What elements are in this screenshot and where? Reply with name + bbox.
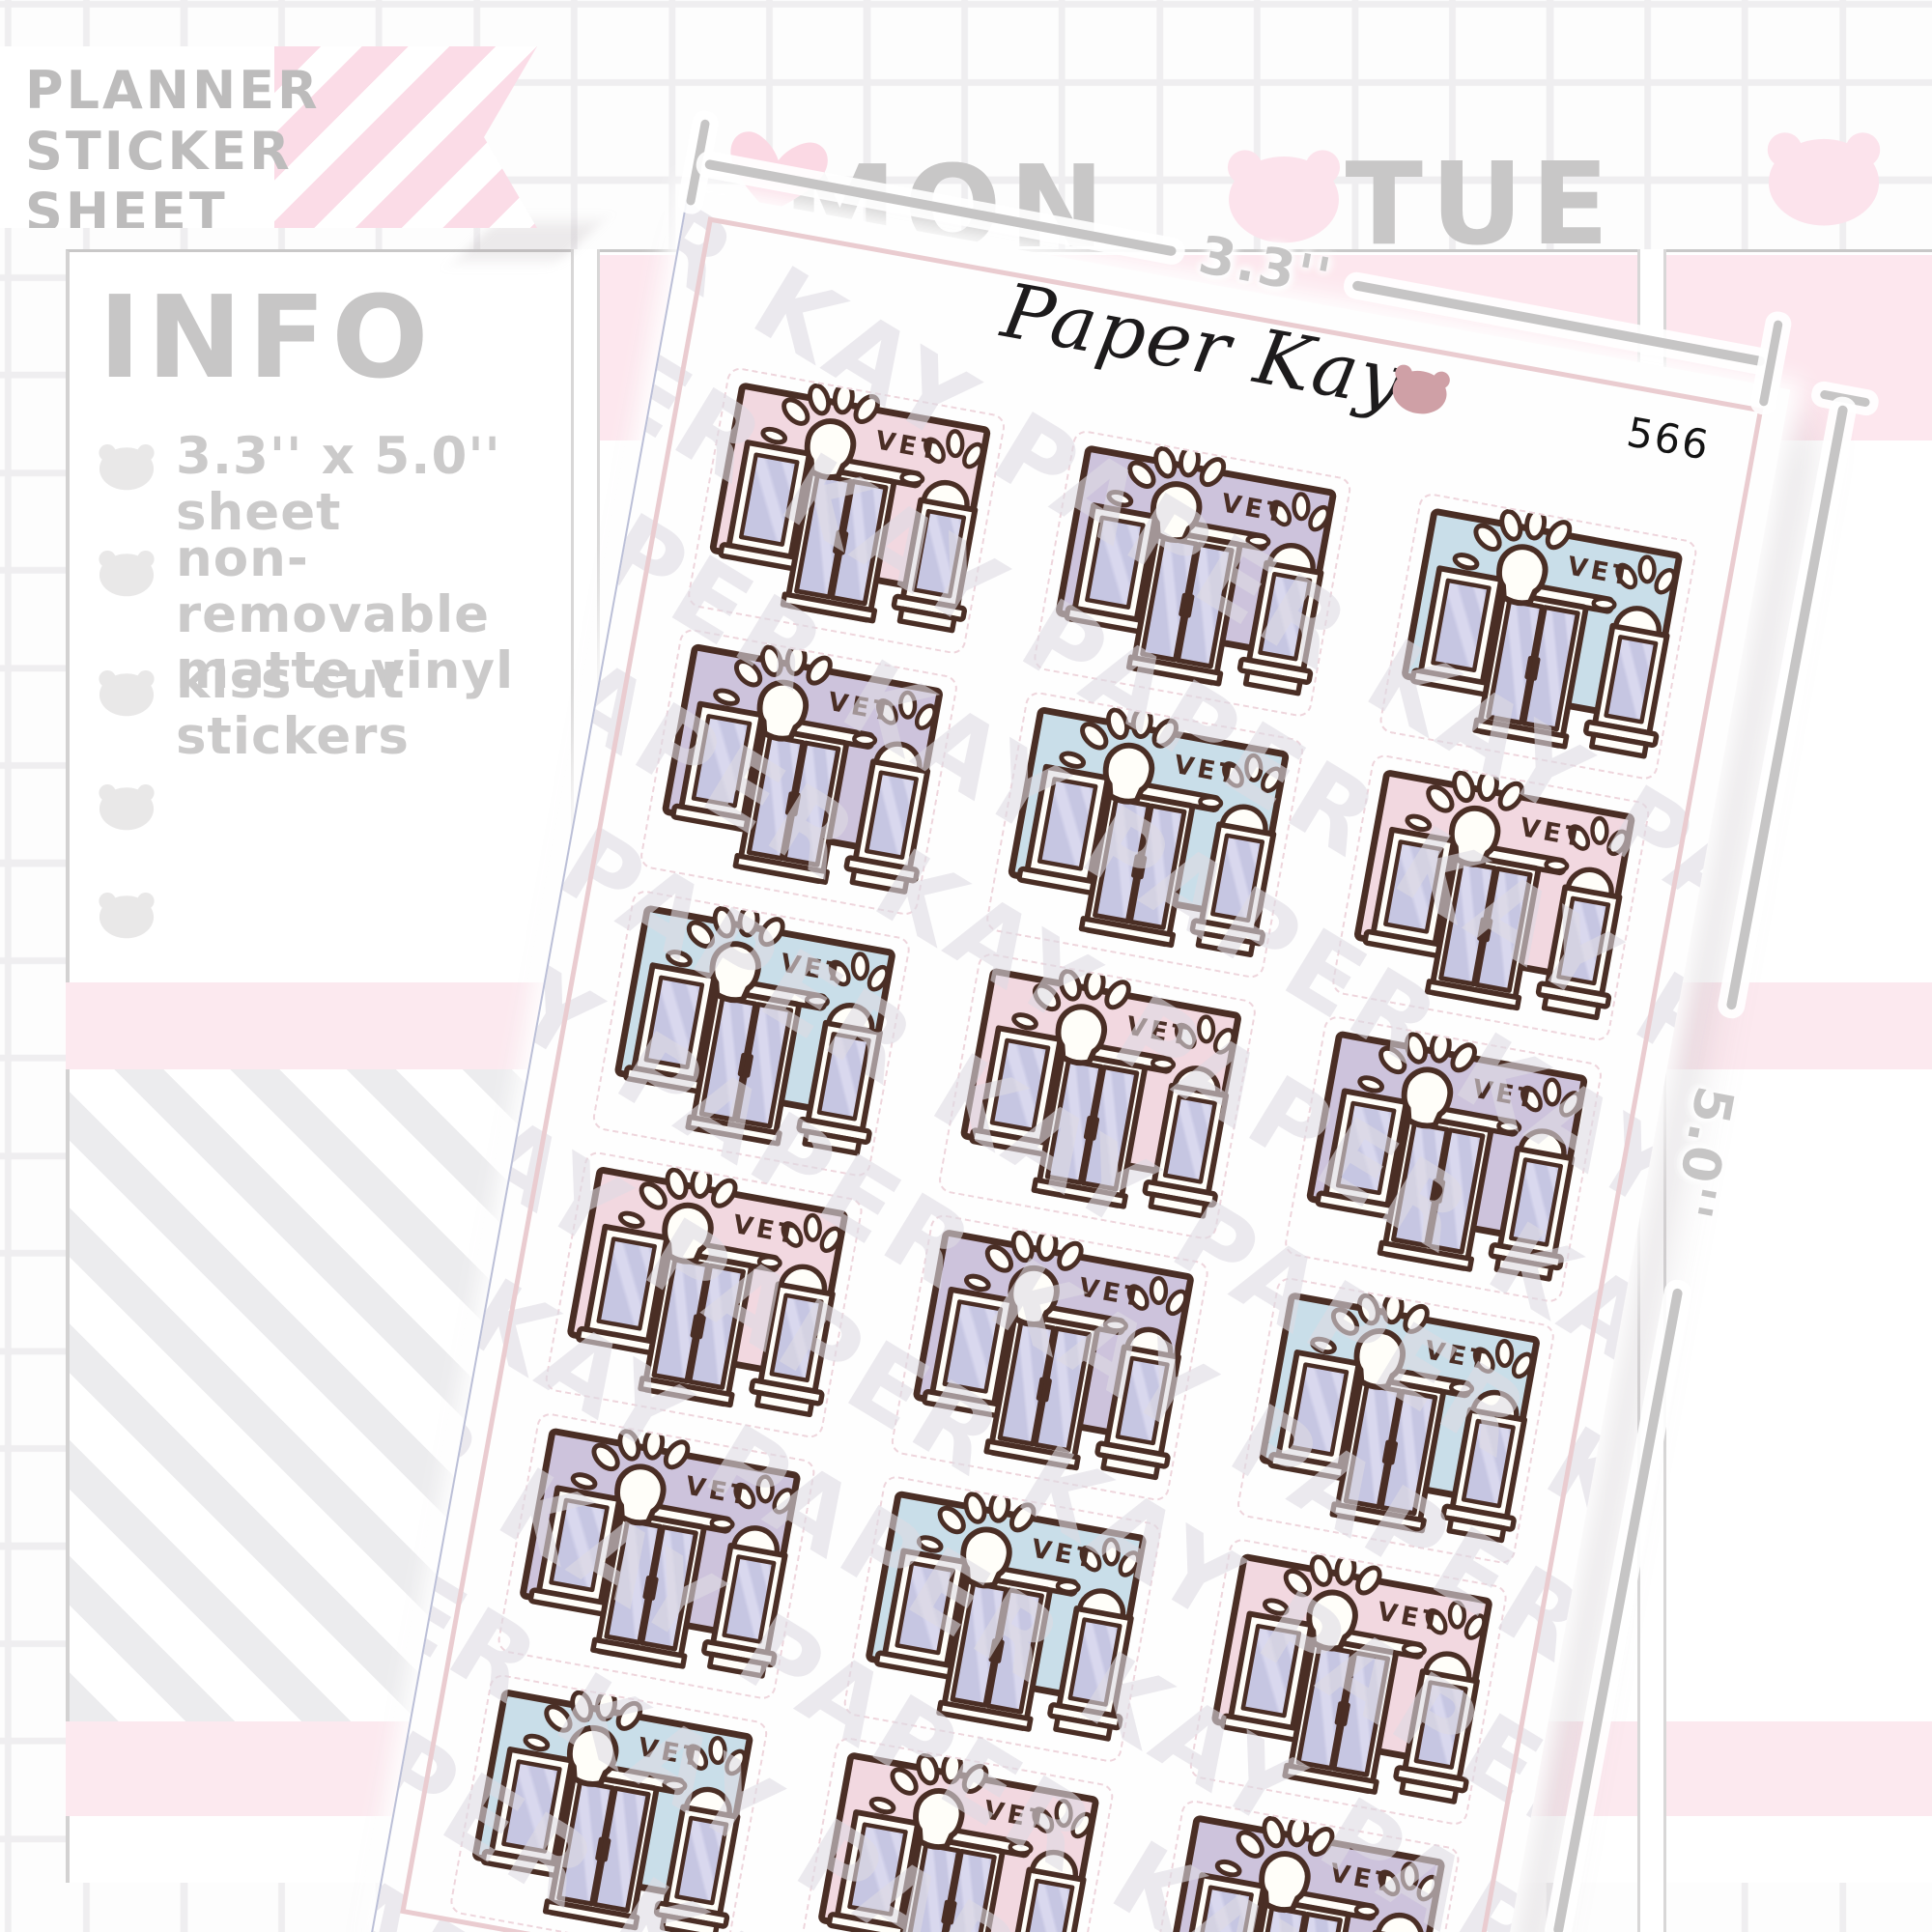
bear-bullet-icon (95, 779, 158, 833)
vet-shop-sticker (1032, 429, 1352, 719)
flag-title-line: PLANNER (25, 60, 321, 121)
flag-title-line: STICKER (25, 121, 321, 182)
sheet-number: 566 (1624, 408, 1715, 469)
bear-icon (1751, 122, 1896, 230)
vet-shop-sticker (984, 690, 1305, 980)
bear-bullet-icon (95, 887, 158, 941)
vet-shop-sticker (794, 1736, 1115, 1932)
bear-bullet-icon (95, 545, 158, 599)
bear-bullet-icon (95, 665, 158, 719)
day-header-tue: TUE (1346, 137, 1617, 270)
vet-shop-sticker (448, 1672, 769, 1932)
vet-shop-sticker (543, 1150, 864, 1439)
planner-sticker-mockup: MON TUE PLANNER STICKER SHEET INFO 3.3''… (0, 0, 1932, 1932)
bear-bullet-icon (95, 439, 158, 493)
brand-bear-icon (1384, 356, 1457, 421)
vet-shop-sticker (496, 1411, 816, 1701)
title-flag: PLANNER STICKER SHEET (0, 46, 537, 228)
vet-shop-sticker (639, 627, 959, 917)
vet-shop-sticker (591, 889, 912, 1179)
vet-shop-sticker (1188, 1537, 1509, 1827)
vet-shop-sticker (1236, 1276, 1556, 1566)
vet-shop-sticker (1378, 492, 1698, 781)
vet-shop-sticker (1283, 1014, 1604, 1304)
vet-shop-sticker (841, 1474, 1162, 1764)
info-item-cut: kiss cut stickers (176, 653, 582, 765)
flag-title: PLANNER STICKER SHEET (25, 60, 321, 242)
vet-shop-sticker (937, 952, 1258, 1241)
vet-shop-sticker (1330, 753, 1651, 1042)
flag-title-line: SHEET (25, 182, 321, 242)
info-heading: INFO (99, 270, 435, 404)
vet-shop-sticker (890, 1212, 1210, 1502)
vet-shop-sticker (686, 366, 1007, 656)
info-item-size: 3.3'' x 5.0'' sheet (176, 429, 582, 541)
vet-shop-sticker (1140, 1799, 1461, 1932)
